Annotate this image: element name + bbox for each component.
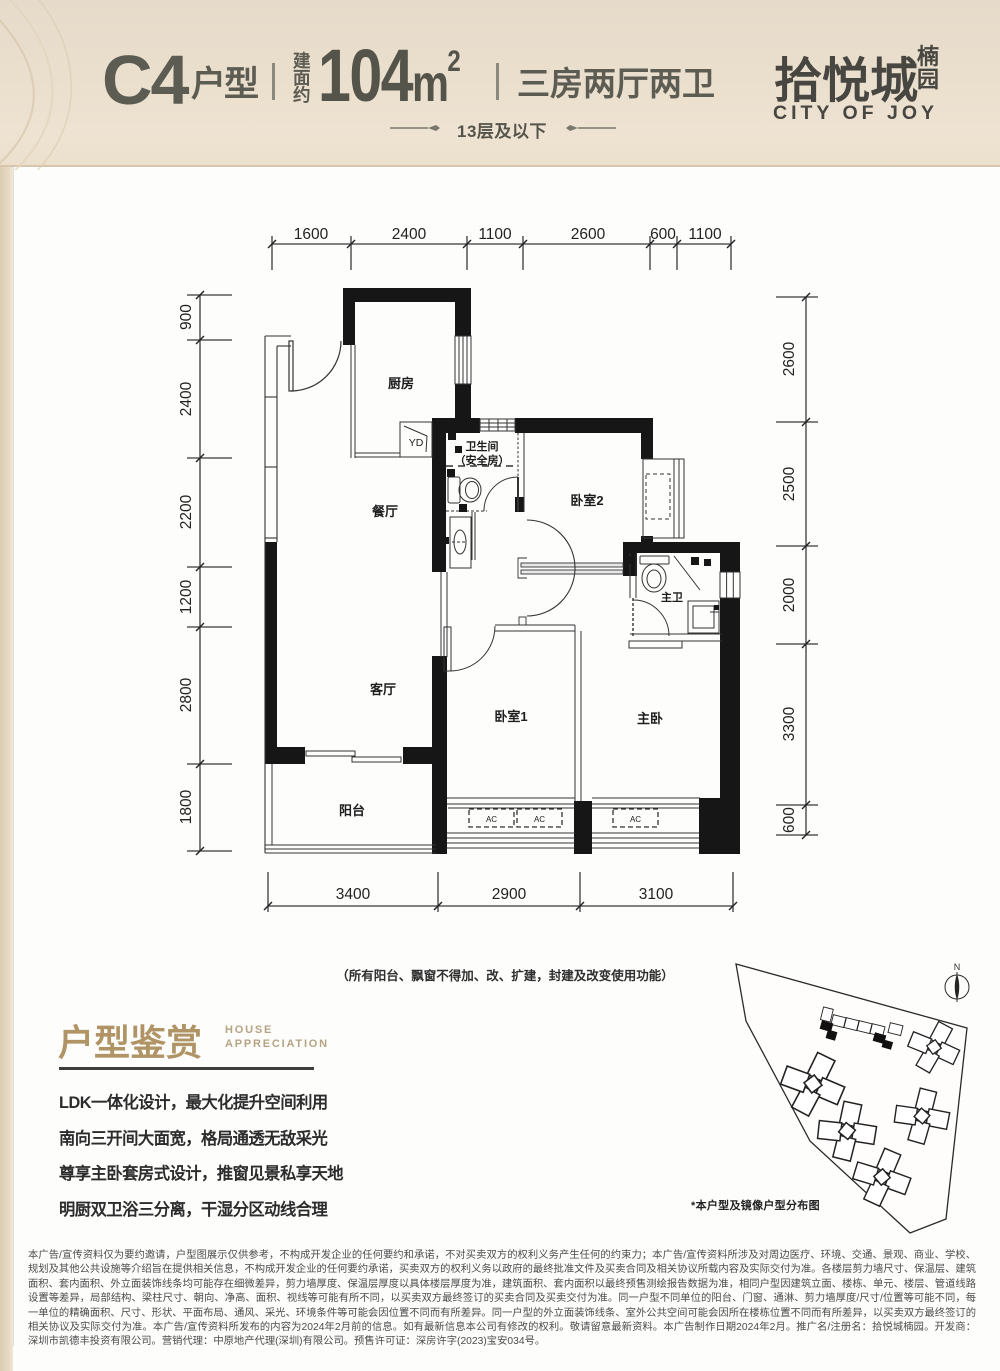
svg-text:1100: 1100	[478, 226, 512, 243]
svg-text:AC: AC	[630, 815, 641, 824]
svg-text:（安全房）: （安全房）	[455, 453, 510, 467]
svg-text:900: 900	[178, 304, 195, 330]
svg-text:2600: 2600	[571, 226, 606, 243]
svg-text:600: 600	[781, 807, 798, 833]
svg-text:2600: 2600	[781, 341, 798, 376]
svg-text:卧室2: 卧室2	[570, 493, 603, 508]
svg-text:阳台: 阳台	[339, 803, 365, 818]
svg-text:厨房: 厨房	[388, 376, 414, 391]
svg-text:卧室1: 卧室1	[494, 709, 527, 724]
svg-text:餐厅: 餐厅	[371, 504, 398, 519]
svg-text:2800: 2800	[178, 677, 195, 712]
svg-text:2000: 2000	[781, 577, 798, 612]
svg-text:1200: 1200	[178, 579, 195, 614]
svg-text:卫生间: 卫生间	[466, 439, 499, 453]
svg-text:N: N	[954, 962, 961, 972]
svg-text:主卧: 主卧	[637, 711, 663, 726]
svg-text:1800: 1800	[178, 789, 195, 824]
svg-text:1600: 1600	[294, 226, 329, 243]
svg-text:3400: 3400	[336, 886, 371, 903]
svg-text:2900: 2900	[492, 886, 527, 903]
svg-text:2400: 2400	[392, 226, 427, 243]
svg-text:600: 600	[650, 226, 676, 243]
svg-text:2500: 2500	[781, 466, 798, 501]
svg-text:YD: YD	[409, 437, 424, 449]
svg-text:3300: 3300	[781, 706, 798, 741]
svg-text:3100: 3100	[639, 886, 674, 903]
svg-text:1100: 1100	[688, 226, 722, 243]
svg-text:AC: AC	[486, 815, 497, 824]
svg-text:AC: AC	[534, 815, 545, 824]
svg-text:2400: 2400	[178, 381, 195, 416]
svg-text:客厅: 客厅	[370, 682, 396, 697]
svg-text:主卫: 主卫	[661, 590, 683, 604]
svg-text:2200: 2200	[178, 494, 195, 529]
